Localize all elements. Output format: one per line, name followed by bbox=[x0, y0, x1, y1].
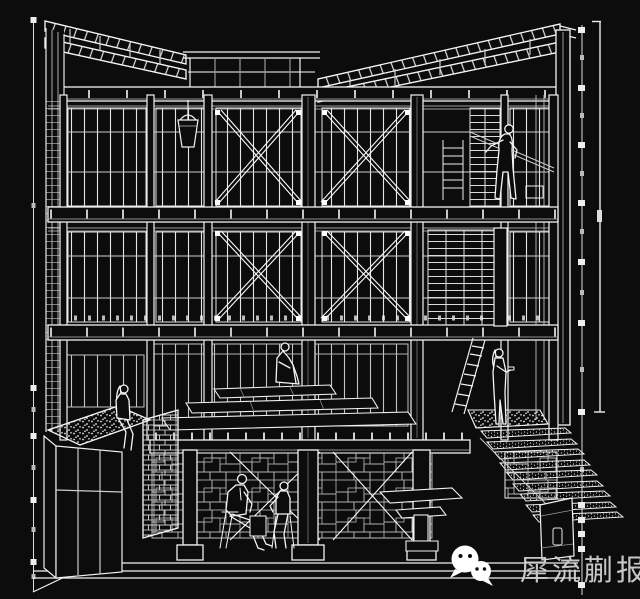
architectural-drawing-canvas: 犀流蒯报 bbox=[0, 0, 640, 599]
building-section-drawing: 犀流蒯报 bbox=[0, 0, 640, 599]
hatch-door-box bbox=[540, 498, 574, 560]
watermark-text: 犀流蒯报 bbox=[520, 553, 640, 587]
stool-box bbox=[250, 516, 266, 536]
